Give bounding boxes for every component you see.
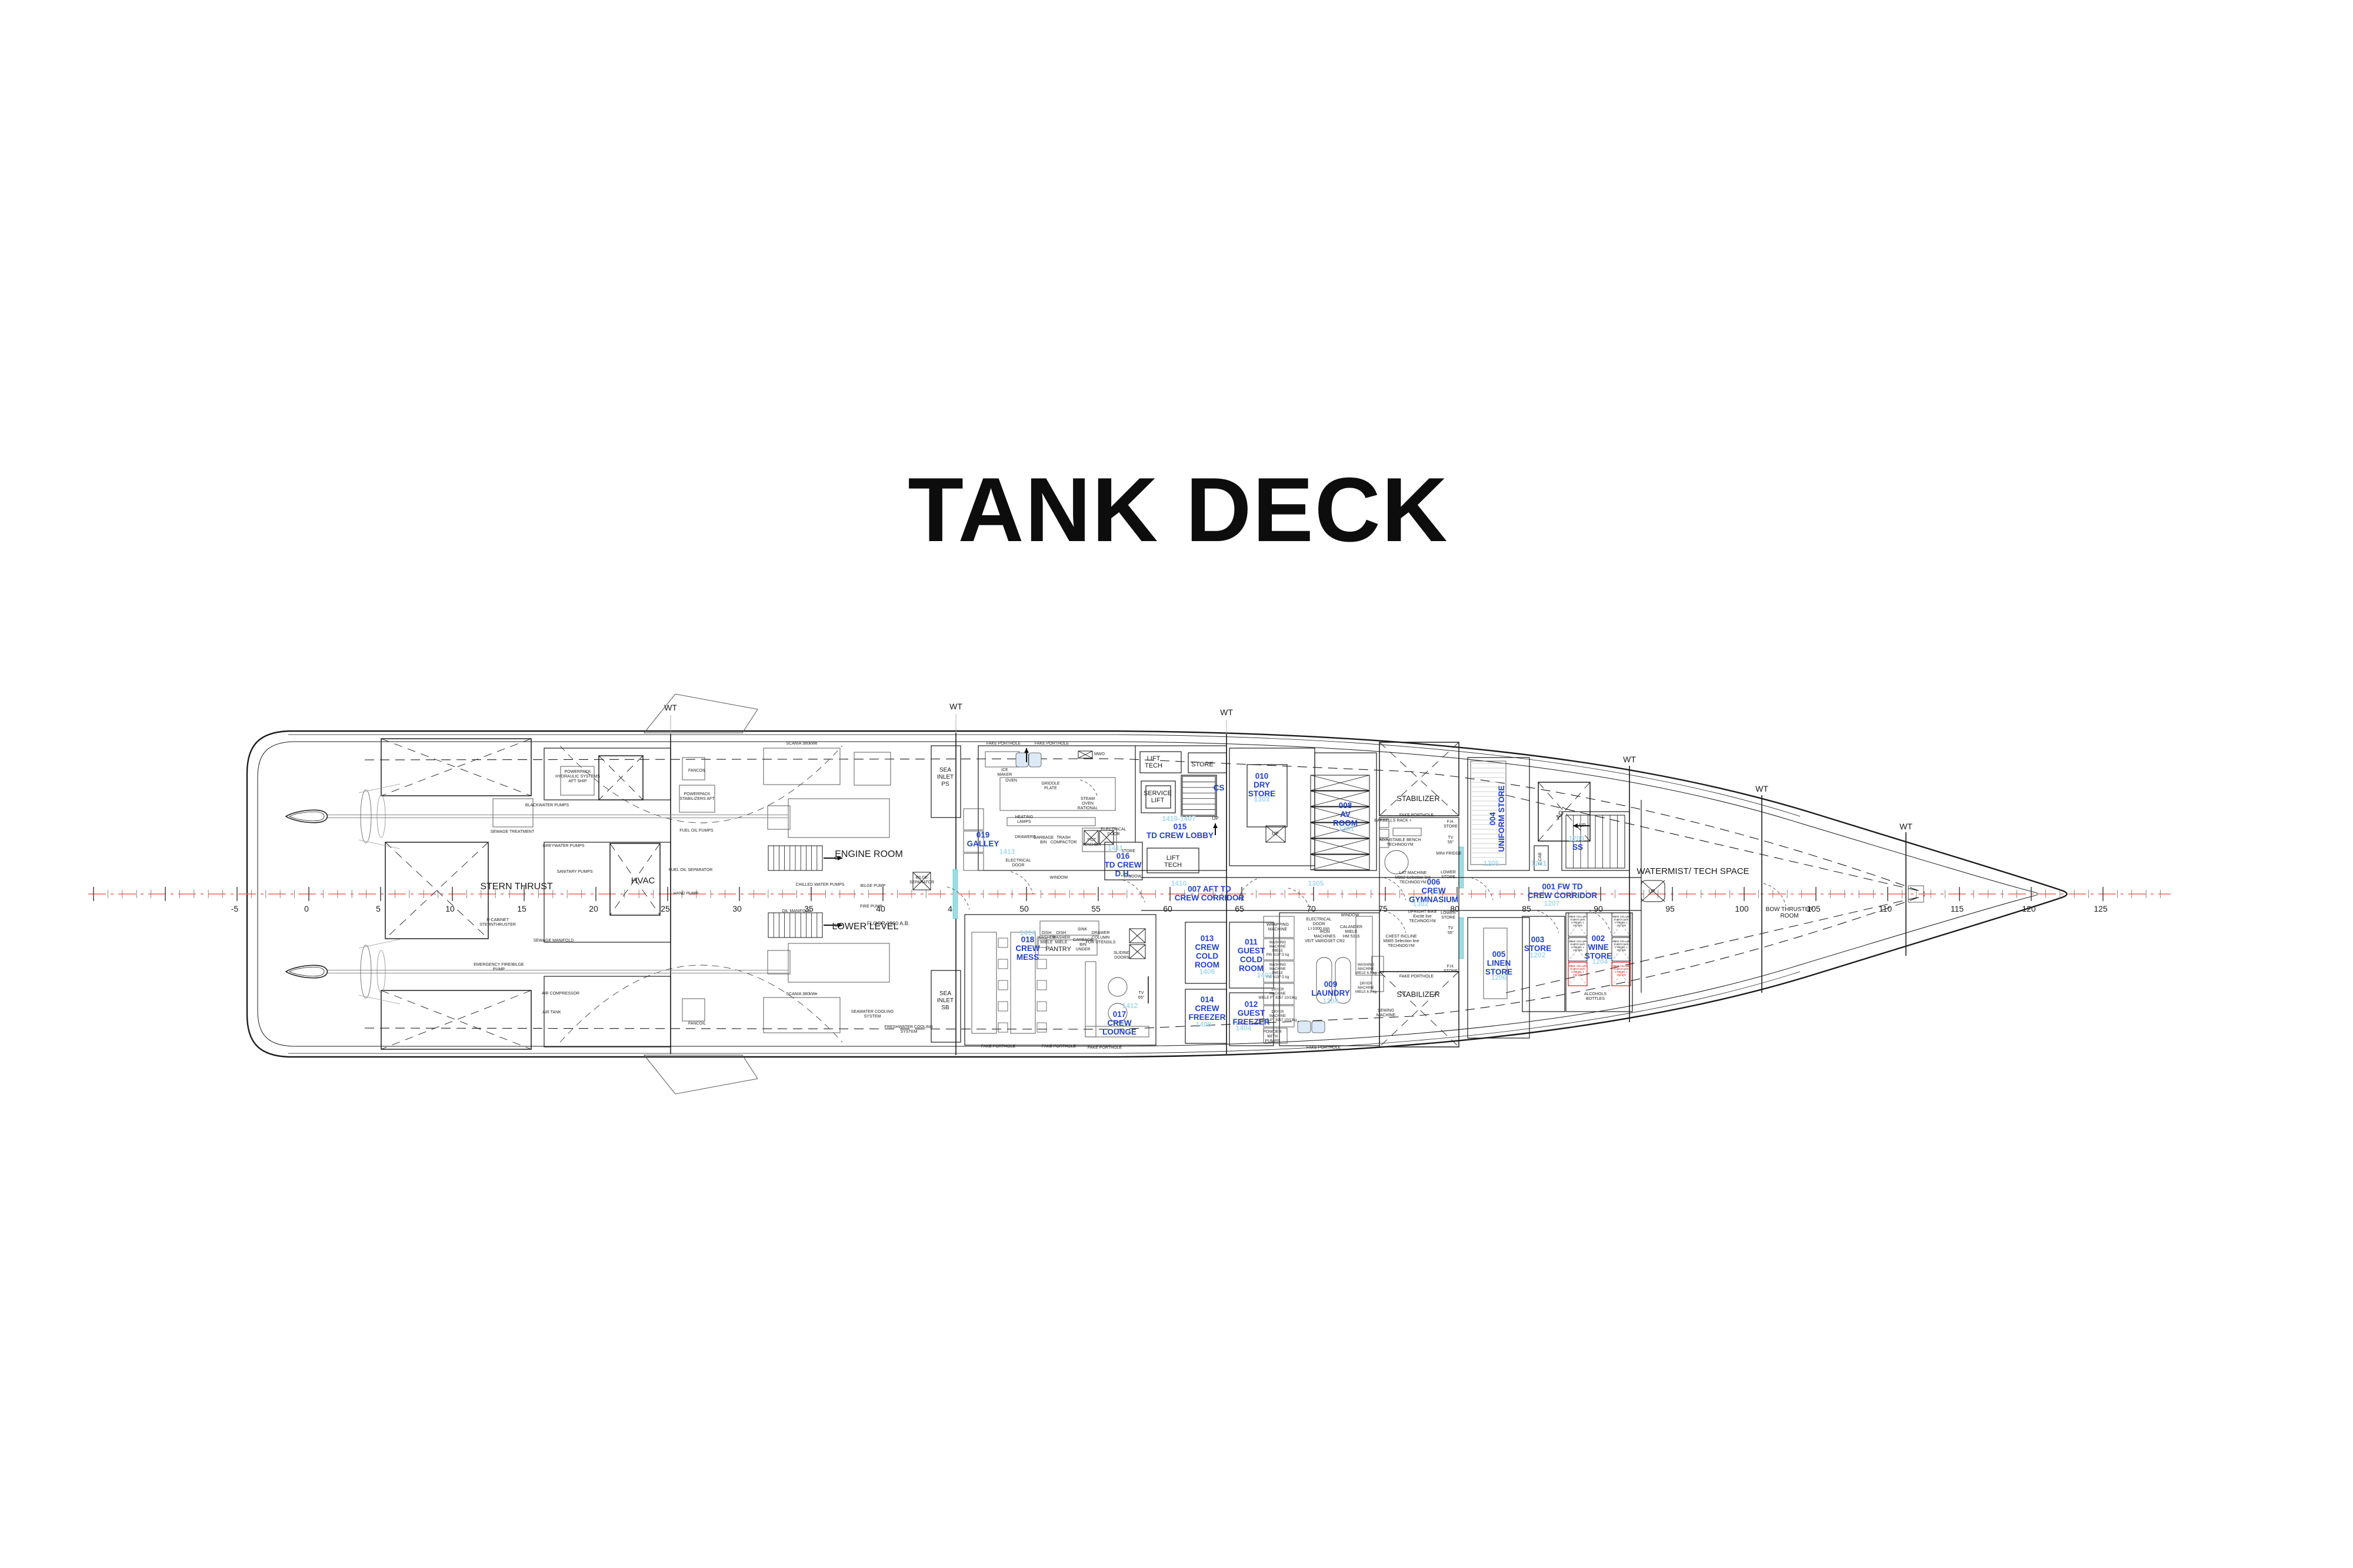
room-name: SS <box>1572 843 1583 852</box>
room-code: 1304 <box>1323 997 1339 1005</box>
room-code: 1303 <box>1254 795 1270 803</box>
frame-number: 10 <box>445 904 455 913</box>
equipment-label: LAT MACHINEM902 Selection lineTECHNOGYM <box>1395 871 1431 885</box>
equipment-label: LOWERSTORE <box>1441 870 1456 879</box>
equipment-label: SEWINGMACHINE <box>1377 1009 1396 1017</box>
frame-number: 95 <box>1665 904 1675 913</box>
equipment-label: AIR TANK <box>542 1010 561 1015</box>
space-label: UP <box>834 923 841 928</box>
equipment-label: FUEL OIL SEPARATOR <box>669 868 713 872</box>
frame-number: 100 <box>1735 904 1749 913</box>
equipment-label: GREYWATER PUMPS <box>542 844 585 848</box>
room-code: 1419-1407 <box>1162 815 1196 823</box>
equipment-label: HAND PUMP <box>674 892 698 896</box>
frame-number: 0 <box>304 904 309 913</box>
room-code: 1302 <box>1413 900 1429 908</box>
frame-number: 90 <box>1594 904 1603 913</box>
room-code: 1204 <box>1592 958 1608 966</box>
wt-label: WT <box>664 703 677 712</box>
equipment-label: FUEL OIL PUMPS <box>679 829 714 833</box>
space-label: HVAC <box>631 876 655 886</box>
equipment-label: WASHINGMACHINEMIELE 6.5 kg <box>1355 963 1377 975</box>
equipment-label: FAKE PORTHOLE <box>1399 813 1434 818</box>
equipment-label: OIL MANIFOLD <box>782 909 811 913</box>
space-label: UP <box>1648 889 1655 894</box>
equipment-label: WRAPPINGMACHINE <box>1267 923 1289 932</box>
stabilizer-fin <box>644 1055 758 1094</box>
space-label: STERN THRUST <box>480 882 552 892</box>
tank-deck-drawing: TANK DECK -50510152025303540455055606570… <box>0 0 2353 1568</box>
room-code: 1301 <box>1339 825 1355 833</box>
room-code: 1207 <box>1544 899 1560 908</box>
space-label: ENGINE ROOM <box>835 849 903 859</box>
equipment-label: POWERPACKSTABILIZERS AFT <box>680 792 715 801</box>
equipment-label: TV55" <box>1448 926 1454 935</box>
wt-label: WT <box>949 702 962 711</box>
frame-number: 20 <box>589 904 598 913</box>
room-code: 1408 <box>1196 1020 1212 1029</box>
equipment-label: CHEST INCLINEM985 Selection lineTECHNOGY… <box>1383 935 1419 948</box>
equipment-label: TV65" <box>1138 991 1145 1000</box>
frame-number: 115 <box>1951 904 1964 913</box>
frame-number: 110 <box>1879 904 1892 913</box>
equipment-label: AIR COMPRESSOR <box>542 992 579 996</box>
room-code: 1206 <box>1491 973 1507 982</box>
equipment-label: FAKE PORTHOLE <box>1042 1045 1076 1049</box>
wt-label: WT <box>1623 755 1636 764</box>
equipment-label: FAKE PORTHOLE <box>1035 742 1069 746</box>
space-label: UP <box>1272 831 1278 836</box>
room-code: 1403 <box>1257 971 1273 979</box>
space-label: UP <box>1212 816 1218 821</box>
equipment-label: FAKE PORTHOLE <box>1088 1046 1122 1050</box>
equipment-label: OVEN <box>1005 779 1017 783</box>
space-label: STABILIZER <box>1397 794 1439 803</box>
room-code: 1410 <box>1171 879 1187 888</box>
equipment-label: SEWAGE MANIFOLD <box>534 939 574 943</box>
frame-number: 60 <box>1163 904 1172 913</box>
wt-label: WT <box>1899 822 1912 831</box>
equipment-label: SANITARY PUMPS <box>556 870 592 874</box>
equipment-label: ALCOHOLSBOTTLES <box>1584 992 1607 1001</box>
room-code: 1203 <box>1569 835 1585 843</box>
deck-title: TANK DECK <box>908 459 1448 561</box>
room-code: 1202 <box>1530 951 1546 959</box>
space-label: PANTRY <box>1045 946 1071 953</box>
room-code: 1414 <box>1020 929 1036 937</box>
equipment-label: BILGE PUMP <box>861 884 886 888</box>
frame-number: 55 <box>1091 904 1101 913</box>
space-label: STORE <box>1191 761 1214 768</box>
room-code: 1411 <box>1108 844 1123 852</box>
frame-number: 30 <box>732 904 742 913</box>
sink <box>1029 753 1041 767</box>
frame-number: 15 <box>517 904 526 913</box>
sink <box>1312 1021 1325 1033</box>
deck-plan-page: TANK DECK -50510152025303540455055606570… <box>0 0 2353 1568</box>
equipment-label: MINI FRIDGE <box>1436 852 1461 856</box>
equipment-label: LOWERSTORE <box>1441 911 1456 920</box>
frame-number: 120 <box>2022 904 2036 913</box>
space-label: LIFTTECH <box>1164 855 1182 869</box>
equipment-label: SCANIA 380kWe <box>786 992 817 996</box>
room-code: 1404 <box>1236 1024 1252 1032</box>
frame-number: 25 <box>661 904 670 913</box>
equipment-label: FAKE PORTHOLE <box>1307 1046 1341 1050</box>
wt-label: WT <box>1220 708 1233 717</box>
space-label: UP <box>1579 823 1585 828</box>
frame-number: 125 <box>2094 904 2108 913</box>
equipment-label: SCANIA 380kWe <box>786 742 817 746</box>
equipment-label: SINK <box>1078 928 1088 932</box>
equipment-label: SLIDINGDOORS <box>1114 951 1130 960</box>
equipment-label: FANCOIL <box>688 769 706 773</box>
frame-number: 50 <box>1019 904 1029 913</box>
equipment-label: BARBELLS RACK + <box>1374 819 1412 823</box>
equipment-label: FLOOR 1960 A.B. <box>867 920 910 926</box>
equipment-label: CHILLED WATER PUMPS <box>796 883 845 887</box>
wt-door-marker <box>953 869 958 919</box>
sink <box>1298 1021 1311 1033</box>
room-code: 1205 <box>1484 859 1499 868</box>
frame-number: 5 <box>376 904 381 913</box>
equipment-label: TV55" <box>1448 836 1454 845</box>
room-name: CS <box>1214 783 1225 792</box>
equipment-label: FIRE PUMP <box>860 905 882 909</box>
frame-number: 65 <box>1235 904 1244 913</box>
room-code: 1412 <box>1122 1002 1138 1010</box>
wt-label: WT <box>1755 784 1768 793</box>
equipment-label: BLACKWATER PUMPS <box>525 803 569 808</box>
wt-door-marker <box>1459 918 1464 959</box>
space-label: WATERMIST/ TECH SPACE <box>1637 866 1749 876</box>
equipment-label: FAKE PORTHOLE <box>1399 975 1434 979</box>
equipment-label: FAKE PORTHOLE <box>986 742 1021 746</box>
equipment-label: MWO <box>1094 752 1105 756</box>
equipment-label: HEATINGLAMPS <box>1015 815 1034 824</box>
room-code: 1201 <box>1531 859 1547 868</box>
equipment-label: FANCOIL <box>688 1022 706 1026</box>
equipment-label: SEWAGE TREATMENT <box>491 830 535 834</box>
stabilizer-fin <box>644 694 758 733</box>
room-code: 1305 <box>1308 879 1324 888</box>
frame-number: 85 <box>1522 904 1531 913</box>
equipment-label: FAKE PORTHOLE <box>981 1045 1016 1049</box>
space-label: STABILIZER <box>1397 990 1439 999</box>
space-label: LIFTTECH <box>1145 755 1162 769</box>
room-code: 1413 <box>999 848 1015 856</box>
frame-number: -5 <box>231 904 239 913</box>
equipment-label: WINDOW <box>1341 913 1359 918</box>
equipment-label: WINDOW <box>1050 876 1068 880</box>
space-label: UP <box>834 856 841 861</box>
room-code: 1406 <box>1199 968 1215 976</box>
frame-number: 70 <box>1307 904 1316 913</box>
